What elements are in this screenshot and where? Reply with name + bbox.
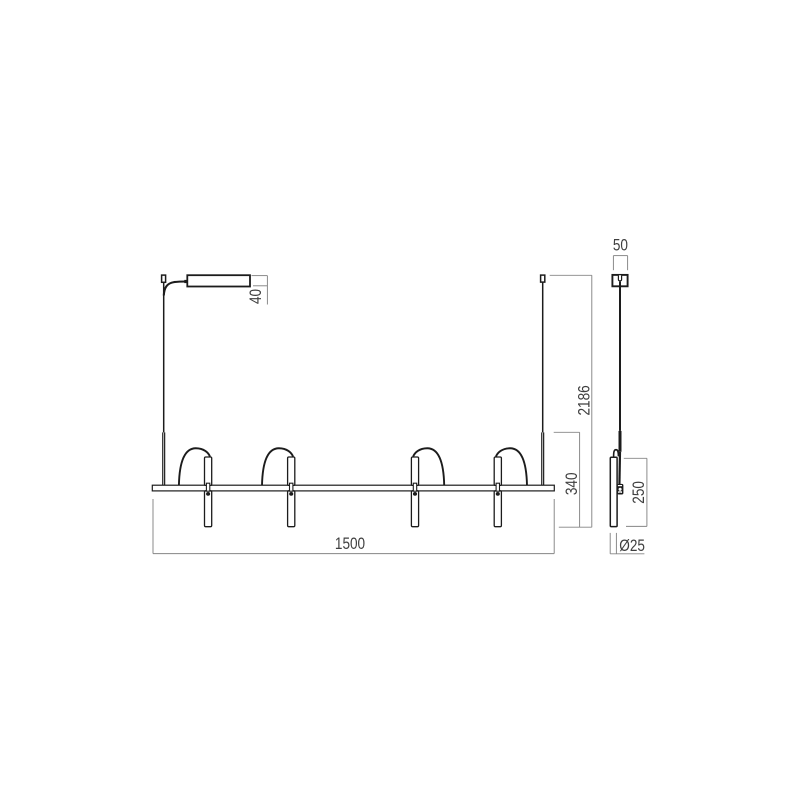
- svg-text:340: 340: [563, 472, 582, 495]
- svg-text:40: 40: [247, 289, 266, 304]
- svg-text:Ø25: Ø25: [619, 536, 645, 555]
- svg-text:2186: 2186: [575, 385, 594, 415]
- svg-text:250: 250: [630, 481, 649, 504]
- svg-text:50: 50: [613, 236, 628, 255]
- svg-text:1500: 1500: [335, 534, 365, 553]
